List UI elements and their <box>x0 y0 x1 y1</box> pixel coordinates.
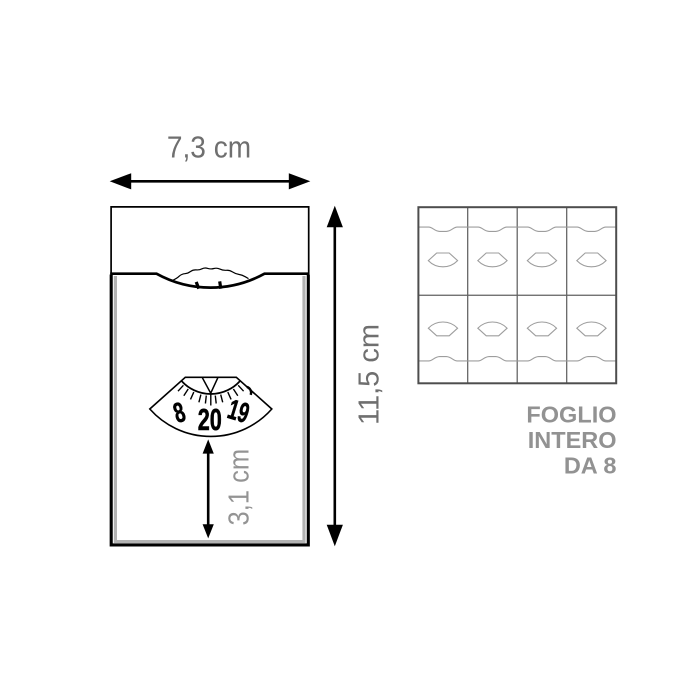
svg-text:11,5 cm: 11,5 cm <box>354 324 386 425</box>
svg-text:8: 8 <box>170 397 189 430</box>
svg-text:7,3 cm: 7,3 cm <box>167 131 251 165</box>
svg-text:INTERO: INTERO <box>528 427 617 453</box>
svg-text:DA 8: DA 8 <box>564 453 617 479</box>
svg-text:20: 20 <box>198 403 222 438</box>
svg-text:FOGLIO: FOGLIO <box>526 402 616 428</box>
svg-text:19: 19 <box>224 395 253 430</box>
svg-text:3,1 cm: 3,1 cm <box>222 449 255 526</box>
